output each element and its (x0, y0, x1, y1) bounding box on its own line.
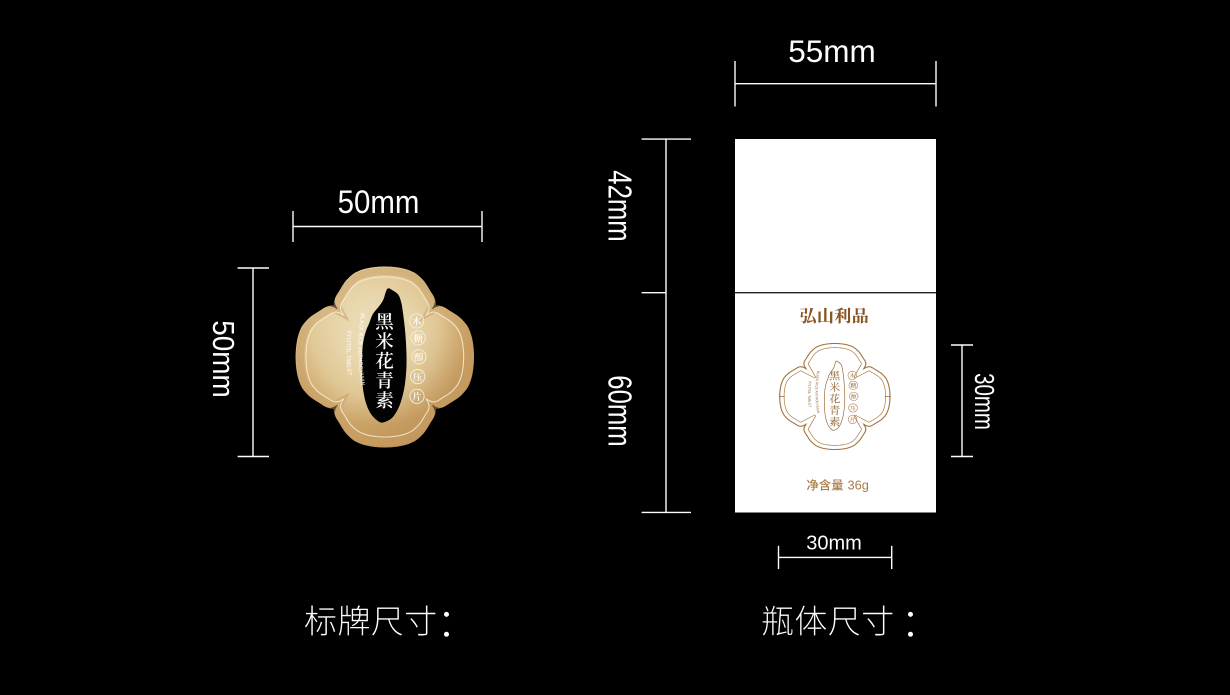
svg-text:50mm: 50mm (206, 320, 241, 398)
svg-text:50mm: 50mm (338, 184, 420, 220)
svg-text:42mm: 42mm (601, 170, 638, 241)
svg-text:60mm: 60mm (601, 375, 638, 446)
svg-text:36g: 36g (848, 478, 869, 493)
svg-text:30mm: 30mm (806, 532, 862, 554)
svg-text:30mm: 30mm (968, 373, 999, 430)
svg-text:55mm: 55mm (788, 33, 876, 69)
